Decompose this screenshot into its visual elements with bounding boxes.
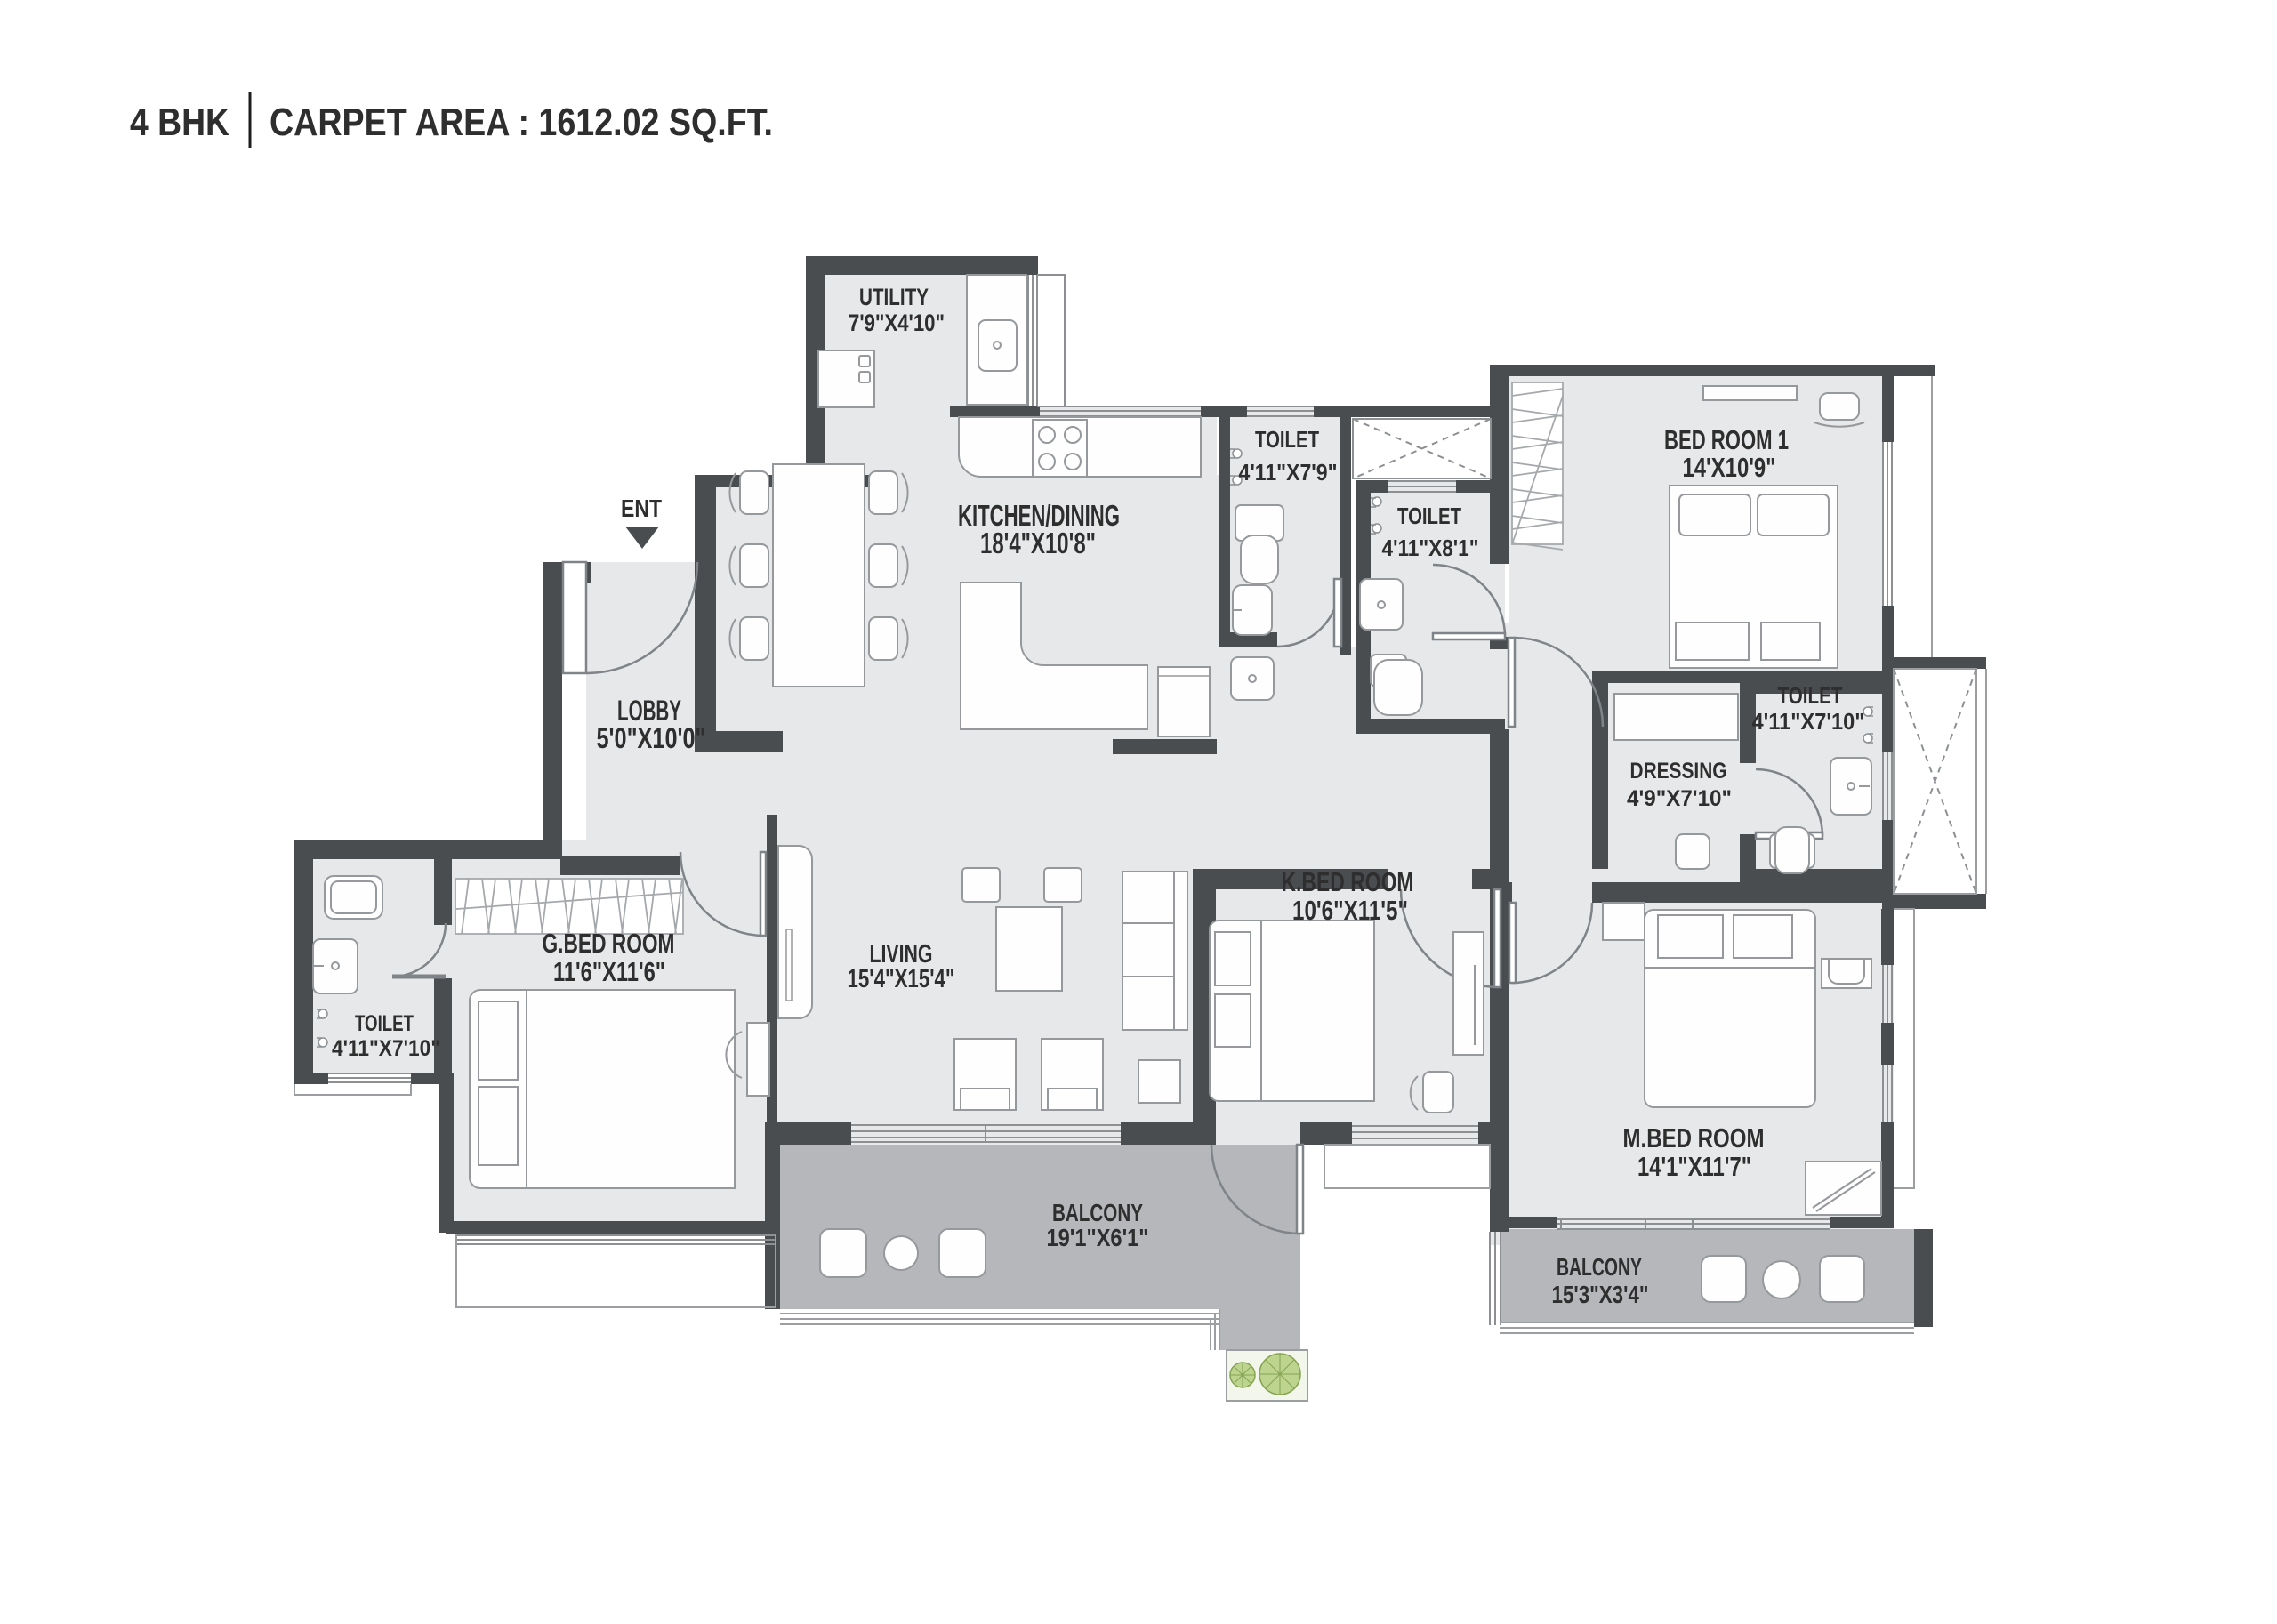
- svg-text:CARPET AREA : 1612.02 SQ.FT.: CARPET AREA : 1612.02 SQ.FT.: [270, 100, 773, 144]
- svg-text:4'11"X7'9": 4'11"X7'9": [1239, 459, 1338, 486]
- svg-text:BALCONY: BALCONY: [1557, 1253, 1642, 1281]
- svg-text:DRESSING: DRESSING: [1630, 759, 1727, 784]
- svg-text:ENT: ENT: [621, 494, 662, 522]
- svg-text:11'6"X11'6": 11'6"X11'6": [553, 956, 665, 987]
- svg-text:19'1"X6'1": 19'1"X6'1": [1047, 1224, 1149, 1251]
- svg-text:14'X10'9": 14'X10'9": [1683, 452, 1776, 483]
- svg-text:UTILITY: UTILITY: [859, 284, 929, 310]
- svg-text:4'11"X7'10": 4'11"X7'10": [332, 1036, 440, 1061]
- svg-text:18'4"X10'8": 18'4"X10'8": [980, 527, 1096, 559]
- svg-text:K.BED ROOM: K.BED ROOM: [1282, 866, 1414, 897]
- svg-text:4'9"X7'10": 4'9"X7'10": [1627, 786, 1732, 811]
- svg-text:TOILET: TOILET: [1778, 682, 1843, 709]
- svg-text:4'11"X7'10": 4'11"X7'10": [1752, 708, 1865, 735]
- svg-text:5'0"X10'0": 5'0"X10'0": [597, 722, 706, 754]
- svg-text:BED ROOM 1: BED ROOM 1: [1664, 424, 1789, 455]
- svg-text:14'1"X11'7": 14'1"X11'7": [1637, 1151, 1751, 1182]
- svg-text:M.BED ROOM: M.BED ROOM: [1623, 1122, 1765, 1154]
- svg-text:7'9"X4'10": 7'9"X4'10": [849, 310, 945, 336]
- svg-text:TOILET: TOILET: [355, 1011, 414, 1036]
- svg-text:TOILET: TOILET: [1255, 426, 1319, 453]
- svg-text:10'6"X11'5": 10'6"X11'5": [1292, 895, 1408, 926]
- svg-text:BALCONY: BALCONY: [1052, 1199, 1143, 1226]
- svg-text:4 BHK: 4 BHK: [130, 100, 229, 144]
- svg-text:G.BED ROOM: G.BED ROOM: [543, 928, 675, 959]
- svg-text:TOILET: TOILET: [1397, 502, 1461, 529]
- svg-text:4'11"X8'1": 4'11"X8'1": [1382, 535, 1479, 561]
- svg-text:15'3"X3'4": 15'3"X3'4": [1552, 1281, 1649, 1308]
- svg-text:15'4"X15'4": 15'4"X15'4": [848, 965, 955, 993]
